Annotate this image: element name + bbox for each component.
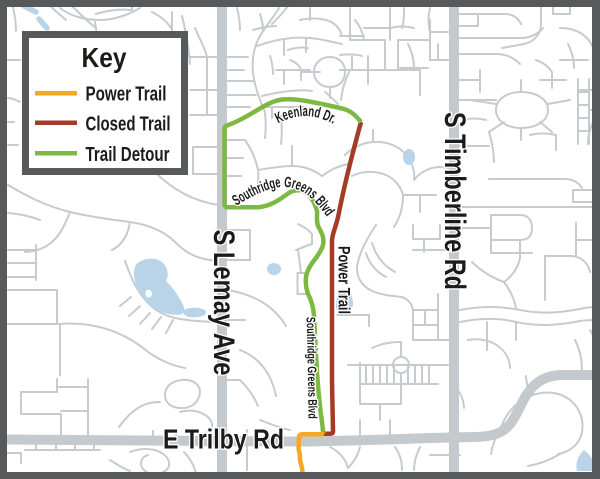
svg-text:S Lemay Ave: S Lemay Ave (207, 230, 240, 376)
svg-text:E Trilby Rd: E Trilby Rd (163, 424, 284, 455)
svg-text:Key: Key (82, 42, 127, 73)
svg-text:Trail Detour: Trail Detour (86, 143, 170, 166)
svg-text:Southridge Greens Blvd: Southridge Greens Blvd (304, 317, 320, 419)
svg-text:Power Trail: Power Trail (86, 83, 167, 106)
svg-text:Closed Trail: Closed Trail (86, 113, 171, 136)
svg-text:S Timberline Rd: S Timberline Rd (438, 112, 471, 290)
svg-text:Power Trail: Power Trail (335, 246, 354, 314)
